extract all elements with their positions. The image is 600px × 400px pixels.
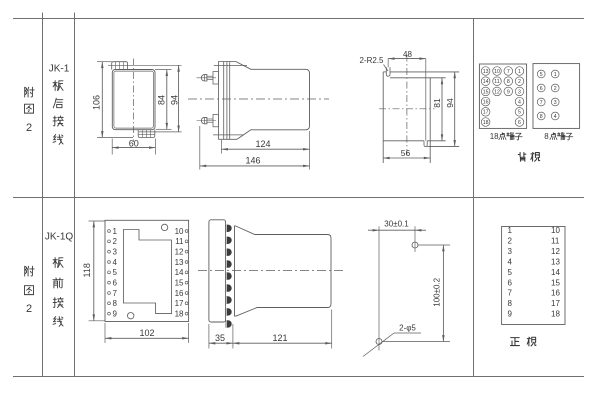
svg-text:17: 17 (483, 110, 489, 116)
svg-text:118: 118 (82, 263, 92, 277)
svg-text:JK-1Q: JK-1Q (45, 232, 74, 243)
svg-text:84: 84 (156, 95, 166, 105)
svg-text:3: 3 (554, 100, 557, 106)
svg-text:12: 12 (494, 89, 500, 95)
svg-text:17: 17 (551, 299, 560, 308)
svg-text:1: 1 (113, 227, 118, 236)
svg-text:11: 11 (551, 236, 560, 245)
svg-text:6: 6 (113, 279, 118, 288)
svg-text:14: 14 (551, 268, 560, 277)
svg-text:1: 1 (518, 69, 521, 75)
svg-text:7: 7 (507, 69, 510, 75)
svg-text:9: 9 (507, 89, 510, 95)
svg-text:7: 7 (113, 289, 118, 298)
svg-text:2: 2 (26, 303, 32, 315)
svg-text:13: 13 (551, 257, 560, 266)
svg-text:15: 15 (175, 279, 184, 288)
svg-text:18: 18 (483, 120, 489, 126)
svg-text:4: 4 (508, 257, 513, 266)
svg-text:2-φ5: 2-φ5 (399, 324, 416, 333)
svg-text:17: 17 (175, 299, 184, 308)
svg-text:81: 81 (432, 98, 442, 108)
svg-text:100±0.2: 100±0.2 (432, 277, 441, 306)
svg-text:13: 13 (483, 69, 489, 75)
svg-text:10: 10 (551, 226, 560, 235)
svg-text:6: 6 (518, 120, 521, 126)
svg-text:106: 106 (92, 95, 102, 110)
svg-text:JK-1: JK-1 (49, 64, 70, 75)
svg-text:6: 6 (540, 86, 543, 92)
svg-text:1: 1 (554, 72, 557, 78)
svg-text:4: 4 (554, 114, 557, 120)
svg-text:12: 12 (175, 248, 184, 257)
svg-text:8: 8 (540, 114, 543, 120)
svg-text:146: 146 (245, 156, 260, 166)
svg-text:2-R2.5: 2-R2.5 (359, 56, 384, 65)
svg-text:8: 8 (113, 299, 118, 308)
svg-text:8: 8 (544, 132, 549, 141)
svg-text:16: 16 (175, 289, 184, 298)
svg-text:1: 1 (508, 226, 513, 235)
svg-text:2: 2 (554, 86, 557, 92)
svg-text:94: 94 (170, 95, 180, 105)
svg-text:12: 12 (551, 247, 560, 256)
svg-text:14: 14 (175, 268, 184, 277)
svg-text:10: 10 (494, 69, 500, 75)
svg-text:2: 2 (508, 236, 513, 245)
svg-text:13: 13 (175, 258, 184, 267)
svg-text:2: 2 (113, 237, 118, 246)
svg-text:124: 124 (255, 139, 270, 149)
svg-text:48: 48 (403, 50, 412, 59)
svg-text:3: 3 (518, 89, 521, 95)
svg-text:5: 5 (540, 72, 543, 78)
svg-text:3: 3 (113, 248, 118, 257)
svg-text:56: 56 (401, 148, 411, 158)
svg-text:4: 4 (113, 258, 118, 267)
svg-text:11: 11 (175, 237, 184, 246)
svg-text:15: 15 (551, 278, 560, 287)
svg-text:18: 18 (490, 132, 499, 141)
svg-text:30±0.1: 30±0.1 (384, 219, 409, 228)
svg-text:4: 4 (518, 100, 521, 106)
svg-text:5: 5 (508, 268, 513, 277)
svg-text:2: 2 (518, 79, 521, 85)
svg-text:121: 121 (272, 333, 287, 343)
svg-text:16: 16 (551, 289, 560, 298)
svg-text:8: 8 (507, 79, 510, 85)
svg-text:10: 10 (175, 227, 184, 236)
svg-text:9: 9 (113, 310, 118, 319)
svg-text:18: 18 (551, 310, 560, 319)
svg-text:9: 9 (508, 310, 513, 319)
svg-text:2: 2 (26, 122, 32, 134)
svg-text:7: 7 (508, 289, 513, 298)
svg-text:8: 8 (508, 299, 513, 308)
svg-text:35: 35 (215, 333, 225, 343)
svg-text:16: 16 (483, 100, 489, 106)
svg-text:11: 11 (494, 79, 499, 85)
svg-text:5: 5 (518, 110, 521, 116)
svg-text:6: 6 (508, 278, 513, 287)
svg-text:3: 3 (508, 247, 513, 256)
svg-text:102: 102 (139, 328, 154, 338)
svg-text:94: 94 (445, 98, 455, 108)
svg-text:15: 15 (483, 89, 489, 95)
svg-text:14: 14 (483, 79, 489, 85)
svg-text:18: 18 (175, 310, 184, 319)
svg-text:5: 5 (113, 268, 118, 277)
svg-text:7: 7 (540, 100, 543, 106)
svg-text:60: 60 (129, 138, 139, 148)
